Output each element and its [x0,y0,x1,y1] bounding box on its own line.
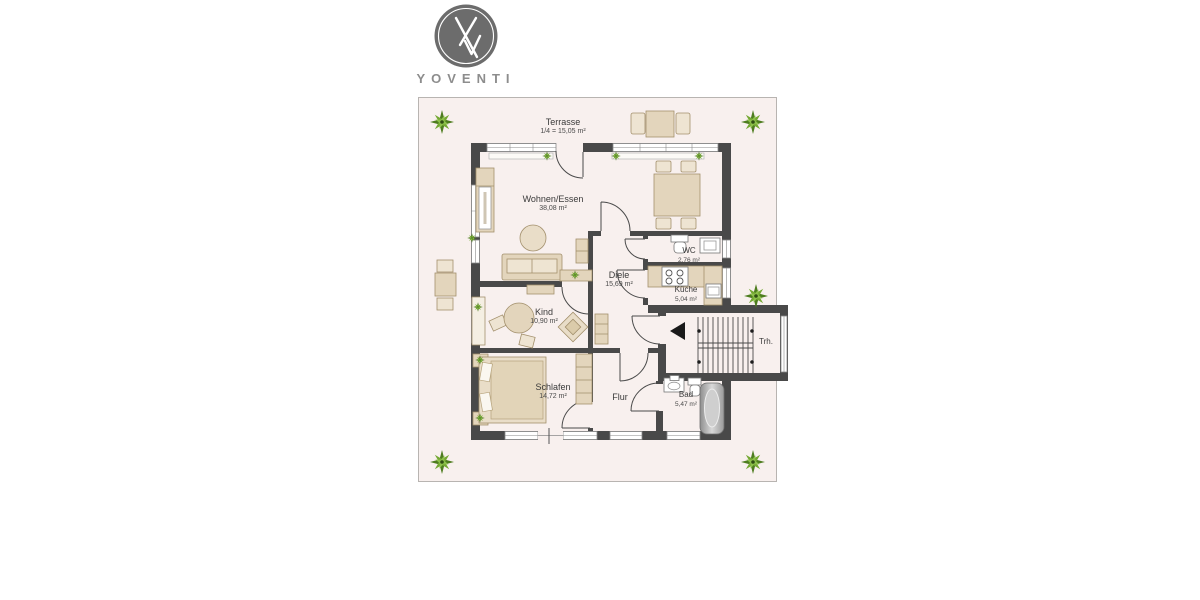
door-wohnen-diele [601,202,630,231]
play-mat [558,312,588,342]
floorplan-drawing [0,0,1200,600]
bathtub [700,383,724,434]
room-label-terrasse: Terrasse 1/4 = 15,05 m² [540,117,585,136]
hall-cabinet [576,239,588,263]
sofa [502,254,562,280]
door-flur-diele [620,353,648,381]
kids-table-set [489,303,535,348]
tv-unit [476,168,494,232]
hall-shelf [595,314,608,344]
door-kind [562,287,589,314]
room-label-bad: Bad 5,47 m² [675,390,697,409]
doors [556,151,660,428]
dining-set [654,161,700,229]
door-terrace [556,151,583,178]
room-label-wc: WC 2,76 m² [678,246,700,265]
garden-set [435,260,456,310]
wardrobe [576,354,592,404]
door-bad [631,383,659,411]
window-sill [612,153,704,159]
room-label-kueche: Küche 5,04 m² [675,285,698,304]
room-label-wohnen-essen: Wohnen/Essen 38,08 m² [523,194,584,213]
room-label-diele: Diele 15,69 m² [605,270,633,289]
room-label-schlafen: Schlafen 14,72 m² [535,382,570,401]
room-label-treppenhaus: Trh. [759,337,773,347]
door-wc [625,239,645,259]
terrace-table-set [631,111,690,137]
sink-wc [700,238,720,253]
coffee-table [520,225,546,251]
page: YOVENTI [0,0,1200,600]
room-label-flur: Flur [612,392,628,402]
kids-shelf [527,285,554,294]
room-label-kind: Kind 10,90 m² [530,307,558,326]
